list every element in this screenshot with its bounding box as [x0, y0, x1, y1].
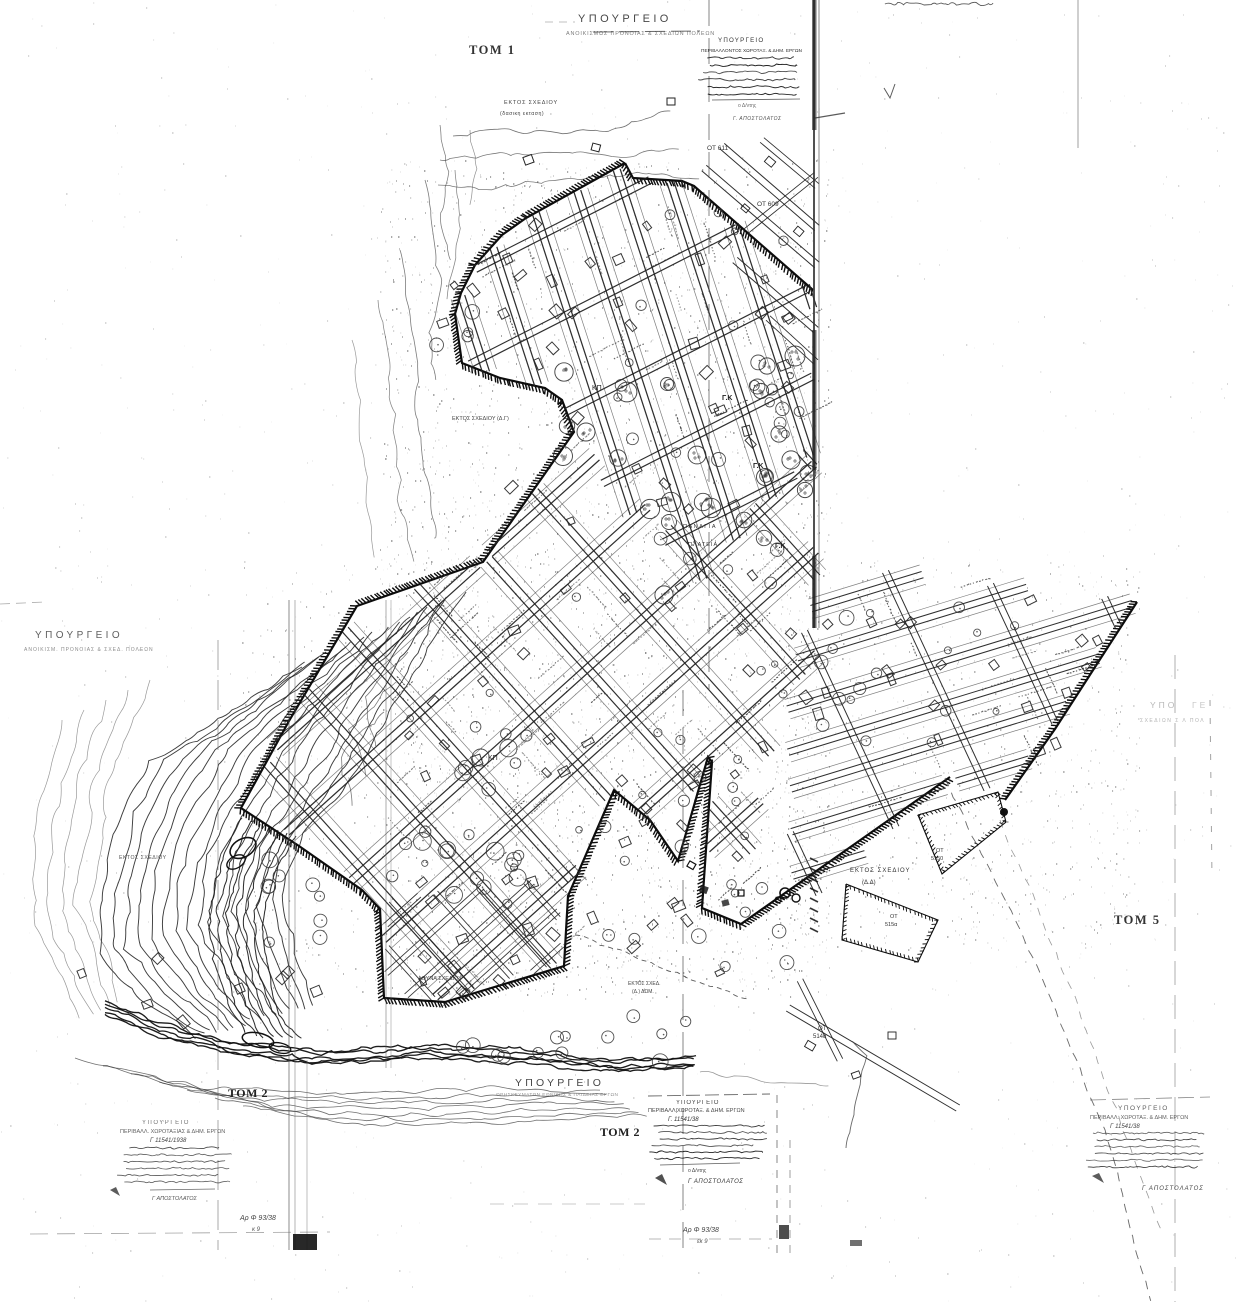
svg-text:ΠΕΡΙΒΑΛΛ. ΧΩΡΟΤΑΞ. & ΔΗΜ. ΕΡΓΩ: ΠΕΡΙΒΑΛΛ. ΧΩΡΟΤΑΞ. & ΔΗΜ. ΕΡΓΩΝ	[1090, 1115, 1188, 1121]
svg-text:Γ ΑΠΟΣΤΟΛΑΤΟΣ: Γ ΑΠΟΣΤΟΛΑΤΟΣ	[1142, 1186, 1204, 1192]
svg-text:ΠΕΡΙΒΑΛΛΟΝΤΟΣ ΧΩΡΟΤΑΞ. & ΔΗΜ.: ΠΕΡΙΒΑΛΛΟΝΤΟΣ ΧΩΡΟΤΑΞ. & ΔΗΜ. ΕΡΓΩΝ	[701, 48, 802, 54]
svg-text:ΕΚΤΟΣ ΣΧΕΔ.: ΕΚΤΟΣ ΣΧΕΔ.	[628, 981, 661, 987]
svg-text:ΕΚΤΟΣ ΣΧΕΔΙΟΥ: ΕΚΤΟΣ ΣΧΕΔΙΟΥ	[119, 855, 167, 861]
svg-text:Αρ Φ 93/38: Αρ Φ 93/38	[239, 1215, 276, 1222]
svg-text:ΣΧΕΔΙΩΝ Σ Λ ΠΟΛ: ΣΧΕΔΙΩΝ Σ Λ ΠΟΛ	[1140, 718, 1205, 724]
svg-text:ΕΚΤΟΣ ΣΧΕΔΙΟΥ: ΕΚΤΟΣ ΣΧΕΔΙΟΥ	[504, 100, 558, 106]
svg-text:ΟΤ: ΟΤ	[818, 1026, 827, 1032]
svg-text:ΥΠΟΥΡΓΕΙΟ: ΥΠΟΥΡΓΕΙΟ	[676, 1100, 719, 1106]
svg-text:ΠΕΡΙΒΑΛΛ|ΧΩΡΟΤΑΞ. & ΔΗΜ. ΕΡΓΩΝ: ΠΕΡΙΒΑΛΛ|ΧΩΡΟΤΑΞ. & ΔΗΜ. ΕΡΓΩΝ	[648, 1108, 745, 1114]
svg-text:514α: 514α	[813, 1034, 827, 1040]
svg-text:ΚΠ: ΚΠ	[488, 755, 498, 762]
svg-text:ΥΠΟΥΡΓΕΙΟ: ΥΠΟΥΡΓΕΙΟ	[1118, 1105, 1169, 1112]
svg-text:Γ.Κ: Γ.Κ	[775, 543, 785, 550]
svg-text:ΠΑΝΑΓΙΑ: ΠΑΝΑΓΙΑ	[683, 524, 717, 530]
svg-text:εκ 9: εκ 9	[697, 1239, 708, 1245]
svg-text:ΛΟΥΝΑ ΣΧΕΔΙΟΥ: ΛΟΥΝΑ ΣΧΕΔΙΟΥ	[418, 976, 462, 982]
svg-text:515α: 515α	[885, 922, 898, 928]
svg-text:ΘΡΗΣΚΕΥΜΑΤΩΝ ΕΘΝΙΚΗΣ & ΠΑΙΔΕΙΑ: ΘΡΗΣΚΕΥΜΑΤΩΝ ΕΘΝΙΚΗΣ & ΠΑΙΔΕΙΑΣ ΕΡΓΩΝ	[496, 1092, 619, 1098]
svg-text:ΑΝΟΙΚΙΣΜΩΣ ΠΡΟΝΟΙΑΣ & ΣΧΕΔΙΩΝ: ΑΝΟΙΚΙΣΜΩΣ ΠΡΟΝΟΙΑΣ & ΣΧΕΔΙΩΝ ΠΟΛΕΩΝ	[566, 31, 715, 37]
svg-text:5150: 5150	[931, 856, 943, 862]
svg-text:TOM 1: TOM 1	[469, 43, 516, 57]
svg-text:Γ.Κ: Γ.Κ	[722, 395, 732, 402]
svg-text:Αρ Φ 93/38: Αρ Φ 93/38	[682, 1227, 719, 1234]
svg-text:ΥΠΟΥΡΓΕΙΟ: ΥΠΟΥΡΓΕΙΟ	[142, 1120, 190, 1126]
svg-text:ο Δ/ντης: ο Δ/ντης	[738, 103, 757, 109]
svg-text:ΕΚΤΟΣ ΣΧΕΔΙΟΥ (Δ.Γ): ΕΚΤΟΣ ΣΧΕΔΙΟΥ (Δ.Γ)	[452, 416, 509, 422]
svg-text:Γ 11541/38: Γ 11541/38	[1110, 1124, 1140, 1130]
svg-text:ΟΤ 609: ΟΤ 609	[757, 201, 779, 208]
svg-text:ΠΕΡΙΒΑΛΛ. ΧΩΡΟΤΑΞΙΑΣ & ΔΗΜ. ΕΡ: ΠΕΡΙΒΑΛΛ. ΧΩΡΟΤΑΞΙΑΣ & ΔΗΜ. ΕΡΓΩΝ	[120, 1129, 225, 1135]
svg-text:ΟΤ: ΟΤ	[936, 848, 944, 854]
svg-text:TOM 5: TOM 5	[1114, 913, 1161, 927]
svg-text:ΥΠΟΥΡΓΕΙΟ: ΥΠΟΥΡΓΕΙΟ	[35, 630, 123, 641]
svg-text:Γ. 11541/38: Γ. 11541/38	[668, 1117, 699, 1123]
svg-text:ΓΕ: ΓΕ	[1192, 700, 1208, 710]
svg-text:ΟΤ: ΟΤ	[890, 914, 898, 920]
svg-text:Γ ΑΠΟΣΤΟΛΑΤΟΣ: Γ ΑΠΟΣΤΟΛΑΤΟΣ	[688, 1179, 743, 1185]
svg-text:ΥΠΟΥΡΓΕΙΟ: ΥΠΟΥΡΓΕΙΟ	[718, 37, 764, 44]
svg-text:ΕΚΤΟΣ ΣΧΕΔΙΟΥ: ΕΚΤΟΣ ΣΧΕΔΙΟΥ	[850, 868, 910, 874]
svg-text:ΥΠΟΥΡΓΕΙΟ: ΥΠΟΥΡΓΕΙΟ	[578, 13, 672, 25]
svg-text:(Δ.Δ): (Δ.Δ)	[862, 880, 876, 886]
svg-text:ΑΝΟΙΚΙΣΜ. ΠΡΟΝΟΙΑΣ & ΣΧΕΔ. ΠΟΛ: ΑΝΟΙΚΙΣΜ. ΠΡΟΝΟΙΑΣ & ΣΧΕΔ. ΠΟΛΕΩΝ	[24, 647, 154, 653]
svg-text:(Δ.) ΔΩΜ.: (Δ.) ΔΩΜ.	[632, 989, 654, 995]
svg-text:Γ 11541/1938: Γ 11541/1938	[150, 1138, 187, 1144]
svg-text:TOM 2: TOM 2	[228, 1086, 268, 1100]
svg-text:Γ.Κ: Γ.Κ	[753, 463, 763, 470]
svg-text:ΟΤ 611: ΟΤ 611	[707, 145, 728, 152]
svg-text:ΚΠ: ΚΠ	[592, 385, 602, 392]
svg-text:ο Δ/ντης: ο Δ/ντης	[688, 1168, 707, 1174]
svg-text:TOM 2: TOM 2	[600, 1125, 640, 1139]
svg-text:Γ ΑΠΟΣΤΟΛΑΤΟΣ: Γ ΑΠΟΣΤΟΛΑΤΟΣ	[152, 1196, 198, 1202]
svg-text:ΥΠΟΥΡΓΕΙΟ: ΥΠΟΥΡΓΕΙΟ	[515, 1077, 604, 1089]
svg-text:(δασικη εκταση): (δασικη εκταση)	[500, 111, 544, 117]
svg-text:ΠΛΑΤΕΙΑ: ΠΛΑΤΕΙΑ	[688, 542, 718, 548]
svg-text:ΥΠΟ: ΥΠΟ	[1150, 700, 1177, 710]
svg-text:Γ. ΑΠΟΣΤΟΛΑΤΟΣ: Γ. ΑΠΟΣΤΟΛΑΤΟΣ	[733, 116, 782, 122]
